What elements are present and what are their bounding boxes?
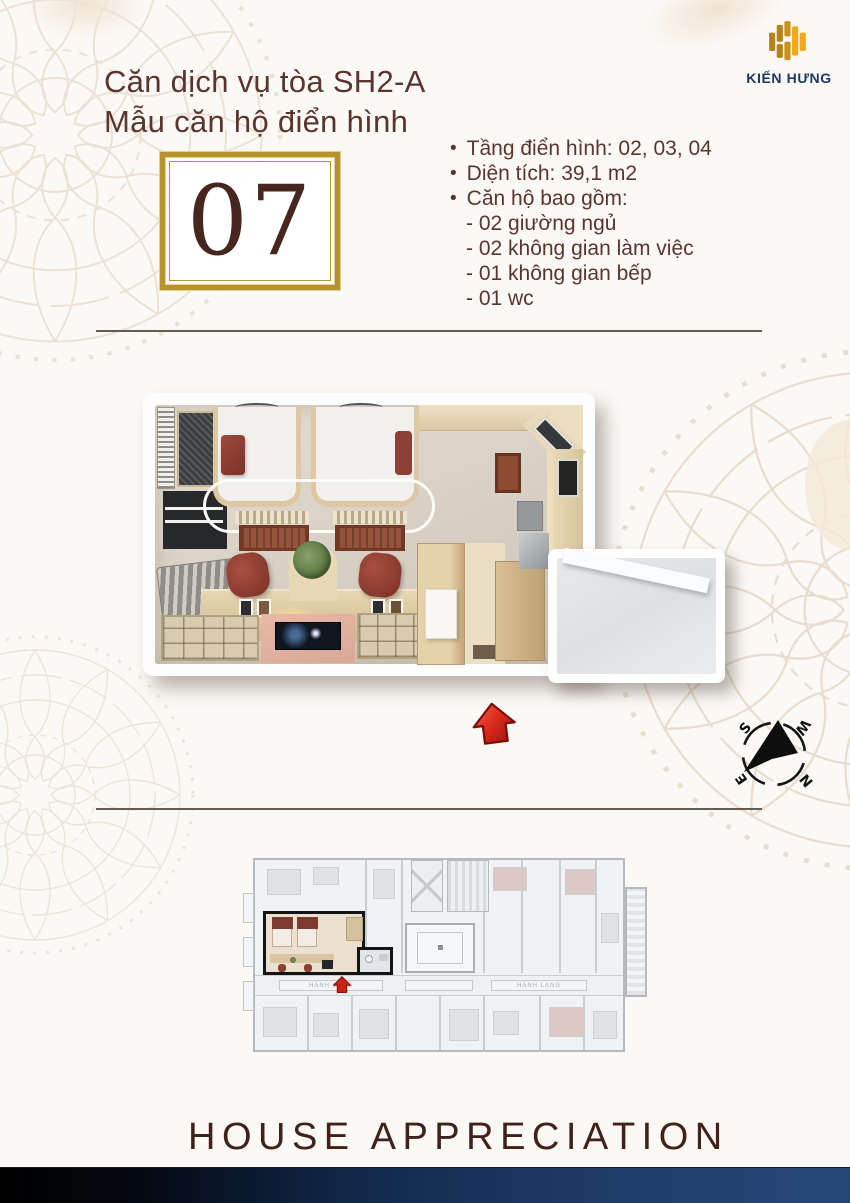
kitchen-mat <box>495 453 521 493</box>
wall <box>395 996 397 1050</box>
tv-screen <box>275 622 341 650</box>
display-shelf-left <box>161 615 259 661</box>
compass-icon: S W E N <box>722 706 826 802</box>
faded-furniture <box>313 867 339 885</box>
highlighted-unit-07 <box>263 911 365 975</box>
elevator-shaft <box>411 860 443 912</box>
wall <box>595 860 597 973</box>
unit-specs-list: Tầng điển hình: 02, 03, 04 Diện tích: 39… <box>450 136 712 311</box>
unit-number: 07 <box>187 173 313 269</box>
faded-furniture <box>449 1009 479 1041</box>
floorplan-overview: HÀNH LANG HÀNH LANG <box>243 853 657 1055</box>
hl-bed-pillow <box>297 917 318 929</box>
core-dot <box>438 945 443 950</box>
core-room <box>405 923 475 973</box>
balcony-box <box>243 893 254 923</box>
ornament-blob-right-edge <box>805 420 850 550</box>
floorplan-3d <box>143 393 725 693</box>
hl-plant <box>290 957 296 963</box>
bed-2-pillow <box>395 431 412 475</box>
unit-number-frame: 07 <box>160 152 340 290</box>
highlighted-unit-bathroom <box>357 947 393 975</box>
corridor-label-right: HÀNH LANG <box>491 980 587 991</box>
floorplan-3d-balcony <box>548 549 725 683</box>
spec-subitem: - 02 không gian làm việc <box>450 236 712 261</box>
balcony-box <box>243 937 254 967</box>
faded-furniture <box>263 1007 297 1037</box>
spec-item: Diện tích: 39,1 m2 <box>450 161 712 186</box>
faded-furniture <box>493 1011 519 1035</box>
brand-name: KIẾN HƯNG <box>742 70 836 86</box>
bedside-slats <box>333 511 407 524</box>
entrance-arrow-icon <box>469 695 519 752</box>
hl-tv <box>322 960 333 969</box>
page-title-line1: Căn dịch vụ tòa SH2-A <box>104 62 426 102</box>
hl-chair <box>278 964 286 972</box>
bed-1-lamp-arc <box>235 403 279 412</box>
faded-furniture <box>549 1007 585 1037</box>
floorplan-3d-main-room <box>143 393 595 676</box>
spec-subitem: - 02 giường ngủ <box>450 211 712 236</box>
page-title-line2: Mẫu căn hộ điển hình <box>104 102 426 142</box>
stair-wing <box>625 887 647 997</box>
compass-south: S <box>736 720 755 738</box>
spec-item: Căn hộ bao gồm: <box>450 186 712 211</box>
divider-bottom <box>96 808 762 810</box>
spec-subitem: - 01 không gian bếp <box>450 261 712 286</box>
faded-furniture <box>593 1011 617 1039</box>
faded-furniture <box>373 869 395 899</box>
wall <box>351 996 353 1050</box>
faded-furniture <box>359 1009 389 1039</box>
corridor-label-left: HÀNH LANG <box>279 980 383 991</box>
rug-mat-2 <box>335 525 405 551</box>
faded-furniture <box>267 869 301 895</box>
bed-2-lamp-arc <box>339 403 383 412</box>
page-title: Căn dịch vụ tòa SH2-A Mẫu căn hộ điển hì… <box>104 62 426 142</box>
faded-furniture <box>565 869 595 895</box>
hl-chair <box>304 964 312 972</box>
hl-sink <box>365 955 373 963</box>
plant <box>293 541 331 579</box>
divider-top <box>96 330 762 332</box>
wall <box>439 996 441 1050</box>
wardrobe-slats <box>157 407 175 489</box>
hl-wc <box>379 954 388 961</box>
hl-closet <box>346 917 363 941</box>
fridge-grey <box>517 501 543 531</box>
faded-furniture <box>313 1013 339 1037</box>
wall <box>483 996 485 1050</box>
spec-item: Tầng điển hình: 02, 03, 04 <box>450 136 712 161</box>
kitchen-lower-cabinet <box>495 561 545 661</box>
wall <box>539 996 541 1050</box>
chair-2 <box>357 551 403 599</box>
hl-bed-pillow <box>272 917 293 929</box>
bedside-slats <box>235 511 309 524</box>
dishwasher-front <box>519 533 549 569</box>
footer-tagline: HOUSE APPRECIATION <box>188 1116 729 1159</box>
wall <box>307 996 309 1050</box>
bed-1-pillow <box>221 435 245 475</box>
ornament-blob-top-left <box>20 0 150 40</box>
corridor-label-middle <box>405 980 473 991</box>
footer-gradient-bar <box>0 1167 850 1203</box>
wall <box>559 860 561 973</box>
overview-entrance-arrow-icon <box>333 973 351 996</box>
cooktop <box>557 459 579 497</box>
faded-furniture <box>493 867 527 891</box>
kien-hung-logo: KIẾN HƯNG <box>742 16 836 86</box>
wall <box>401 860 403 973</box>
brochure-page: { "header": { "title_line1": "Căn dịch v… <box>0 0 850 1202</box>
unit-number-inner-frame: 07 <box>169 161 331 281</box>
balcony-box <box>243 981 254 1011</box>
kien-hung-logo-icon <box>766 16 812 66</box>
spec-subitem: - 01 wc <box>450 286 712 311</box>
compass-west: W <box>791 716 813 738</box>
cabinet-door-white <box>425 589 457 639</box>
stairs-top <box>447 860 489 912</box>
faded-furniture <box>601 913 619 943</box>
